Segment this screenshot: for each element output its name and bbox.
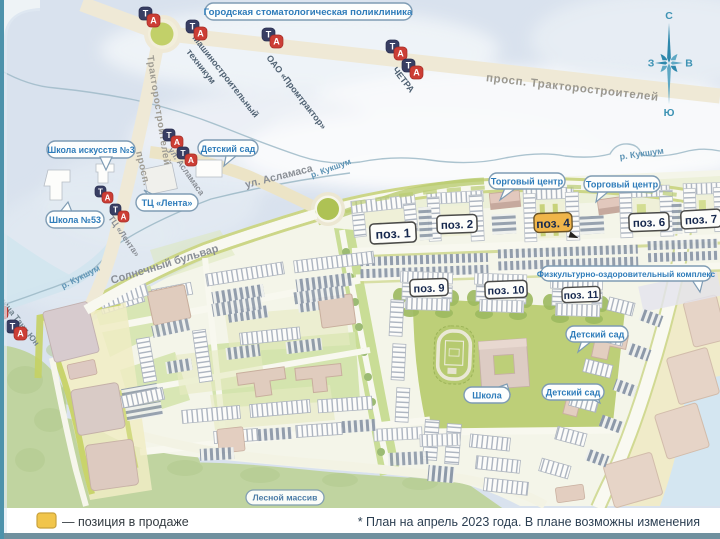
svg-text:Торговый центр: Торговый центр — [586, 180, 659, 190]
svg-text:— позиция в продаже: — позиция в продаже — [62, 515, 189, 529]
svg-text:Лесной массив: Лесной массив — [253, 493, 318, 503]
svg-text:А: А — [17, 329, 24, 339]
svg-text:Торговый центр: Торговый центр — [491, 177, 564, 187]
svg-text:А: А — [413, 68, 420, 78]
svg-text:поз. 4: поз. 4 — [536, 216, 571, 231]
svg-text:поз. 10: поз. 10 — [487, 284, 524, 297]
svg-text:Детский сад: Детский сад — [570, 330, 625, 340]
svg-text:Физкультурно-оздоровительный к: Физкультурно-оздоровительный комплекс — [537, 269, 716, 279]
svg-text:Школа искусств №3: Школа искусств №3 — [47, 145, 134, 155]
svg-text:Городская стоматологическая по: Городская стоматологическая поликлиника — [204, 7, 413, 18]
svg-text:поз. 7: поз. 7 — [685, 214, 718, 228]
svg-text:поз. 6: поз. 6 — [633, 217, 666, 230]
svg-text:Школа: Школа — [472, 391, 502, 401]
svg-text:Ю: Ю — [664, 107, 675, 119]
svg-text:С: С — [665, 10, 673, 22]
svg-text:Т: Т — [113, 206, 118, 215]
svg-text:Детский сад: Детский сад — [201, 144, 256, 154]
svg-text:Детский сад: Детский сад — [546, 388, 601, 398]
svg-text:* План на апрель 2023 года. В: * План на апрель 2023 года. В плане возм… — [358, 515, 700, 529]
svg-text:А: А — [121, 213, 127, 222]
svg-text:А: А — [197, 29, 204, 39]
svg-text:поз. 9: поз. 9 — [413, 282, 444, 295]
svg-text:поз. 2: поз. 2 — [441, 219, 474, 232]
svg-text:А: А — [188, 155, 194, 165]
svg-text:поз. 1: поз. 1 — [375, 226, 411, 242]
svg-text:З: З — [648, 58, 655, 70]
svg-text:В: В — [685, 58, 693, 70]
svg-text:А: А — [150, 16, 157, 26]
svg-text:А: А — [105, 194, 111, 203]
svg-text:А: А — [397, 49, 404, 59]
svg-text:А: А — [273, 37, 280, 47]
svg-text:Школа №53: Школа №53 — [49, 215, 101, 225]
svg-text:А: А — [174, 137, 180, 147]
svg-text:поз. 11: поз. 11 — [563, 289, 598, 302]
svg-text:ТЦ «Лента»: ТЦ «Лента» — [142, 198, 193, 208]
